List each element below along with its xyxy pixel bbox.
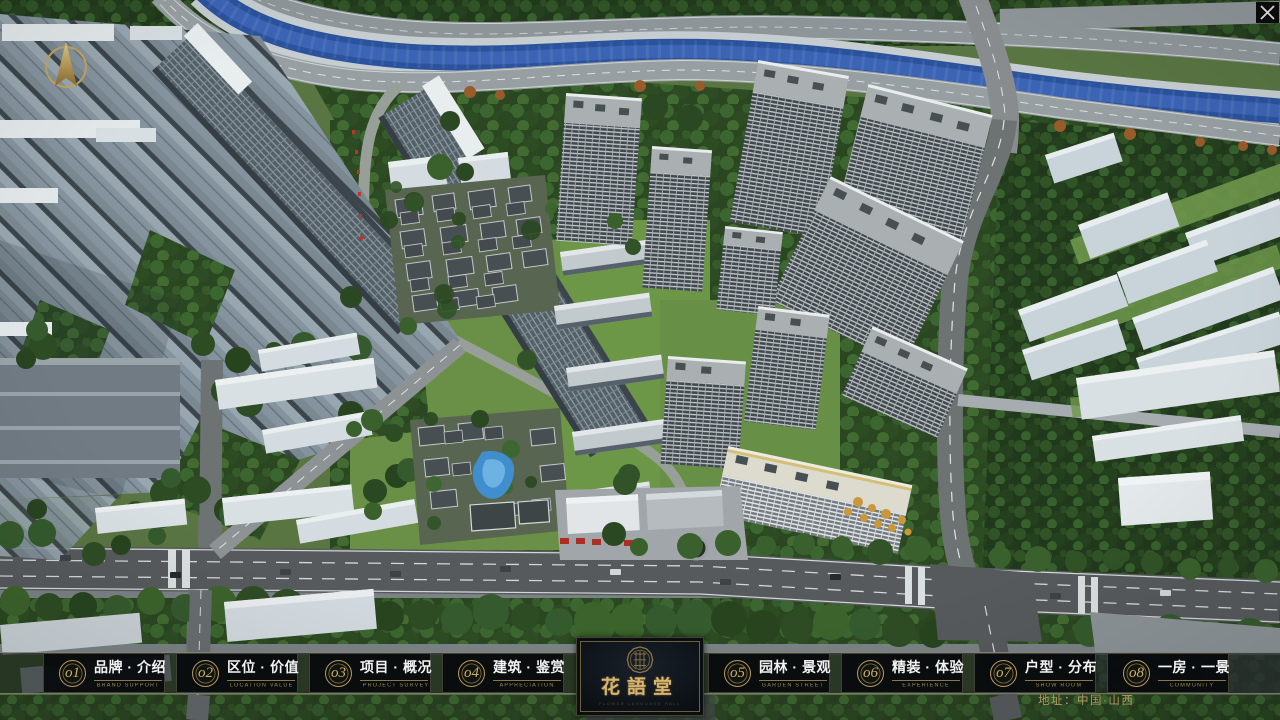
svg-text:花語堂: 花語堂	[601, 675, 679, 698]
svg-text:FLOWER LANGUAGE HALL: FLOWER LANGUAGE HALL	[599, 701, 681, 706]
